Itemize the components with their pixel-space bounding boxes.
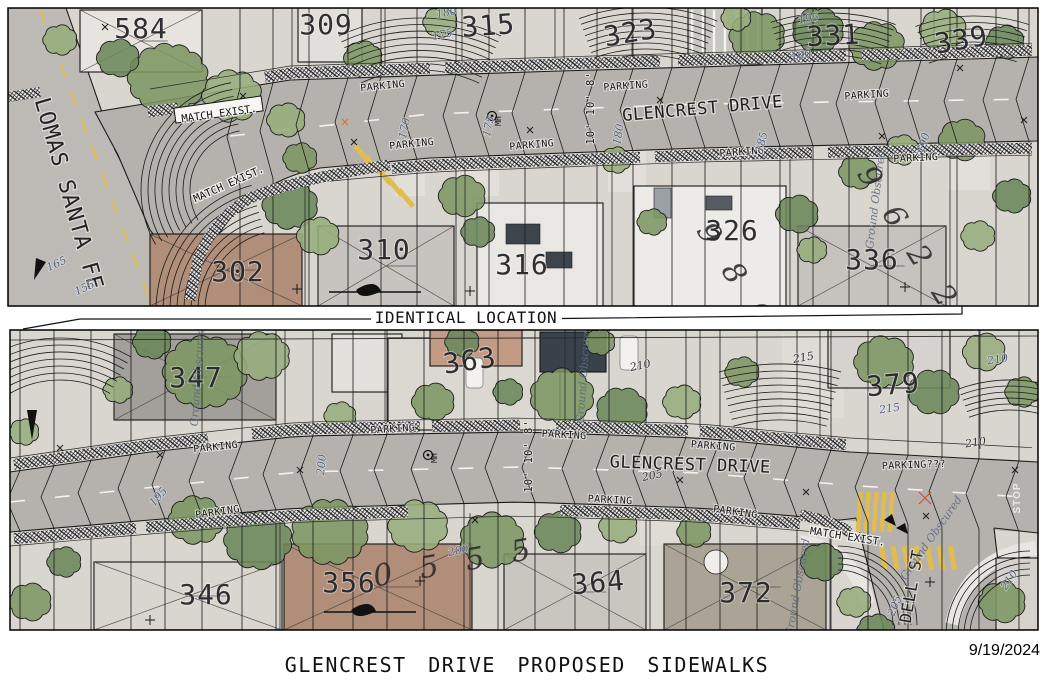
lane-width-label: 10' 10' 8': [585, 71, 597, 144]
identical-location-callout: IDENTICAL LOCATION: [23, 306, 962, 329]
parking-label: PARKING: [541, 429, 586, 442]
house-number-label: 302: [211, 255, 265, 288]
rooftop-dome: [704, 550, 728, 574]
bottom-plan-view: 347363379346356364372GLENCREST DRIVEDELL…: [0, 324, 1047, 648]
sheet-title: GLENCREST DRIVE PROPOSED SIDEWALKS: [285, 653, 769, 677]
proposed-sidewalk-hatch: [678, 56, 846, 61]
plan-sheet: 584309315323331339302310316326336GLENCRE…: [0, 0, 1047, 689]
sheet-date: 9/19/2024: [969, 642, 1040, 659]
top-plan-view: 584309315323331339302310316326336GLENCRE…: [8, 4, 1038, 338]
separator-label: IDENTICAL LOCATION: [375, 308, 557, 327]
house-number-label: 316: [495, 248, 549, 281]
house-number-label: 310: [357, 233, 411, 266]
rooftop-equipment: [706, 196, 732, 210]
manhole-label: MH: [430, 453, 439, 463]
lane-width-label: 10' 10' 8': [523, 419, 535, 492]
parking-label: PARKING: [893, 152, 938, 165]
proposed-sidewalk-hatch: [8, 92, 40, 97]
house-number-label: 315: [460, 7, 516, 44]
house-number-label: 584: [114, 12, 168, 45]
plan-drawing: 584309315323331339302310316326336GLENCRE…: [0, 0, 1047, 689]
house-number-label: 346: [179, 578, 233, 611]
proposed-sidewalk-hatch: [445, 61, 660, 68]
contour-label: 200: [314, 454, 329, 477]
parking-question-label: PARKING???: [882, 459, 947, 472]
house-number-label: 372: [719, 576, 773, 609]
manhole-symbol: [427, 454, 430, 457]
rooftop-equipment: [546, 252, 572, 268]
parking-label: PARKING: [587, 494, 632, 507]
rooftop-equipment: [506, 224, 540, 244]
house-number-label: 356: [322, 566, 376, 599]
house-number-label: 379: [865, 366, 921, 404]
house-number-label: 309: [299, 8, 353, 41]
house-number-label: 364: [570, 564, 626, 602]
proposed-sidewalk-hatch: [432, 425, 520, 427]
stop-marking-label: STOP: [1012, 482, 1023, 513]
